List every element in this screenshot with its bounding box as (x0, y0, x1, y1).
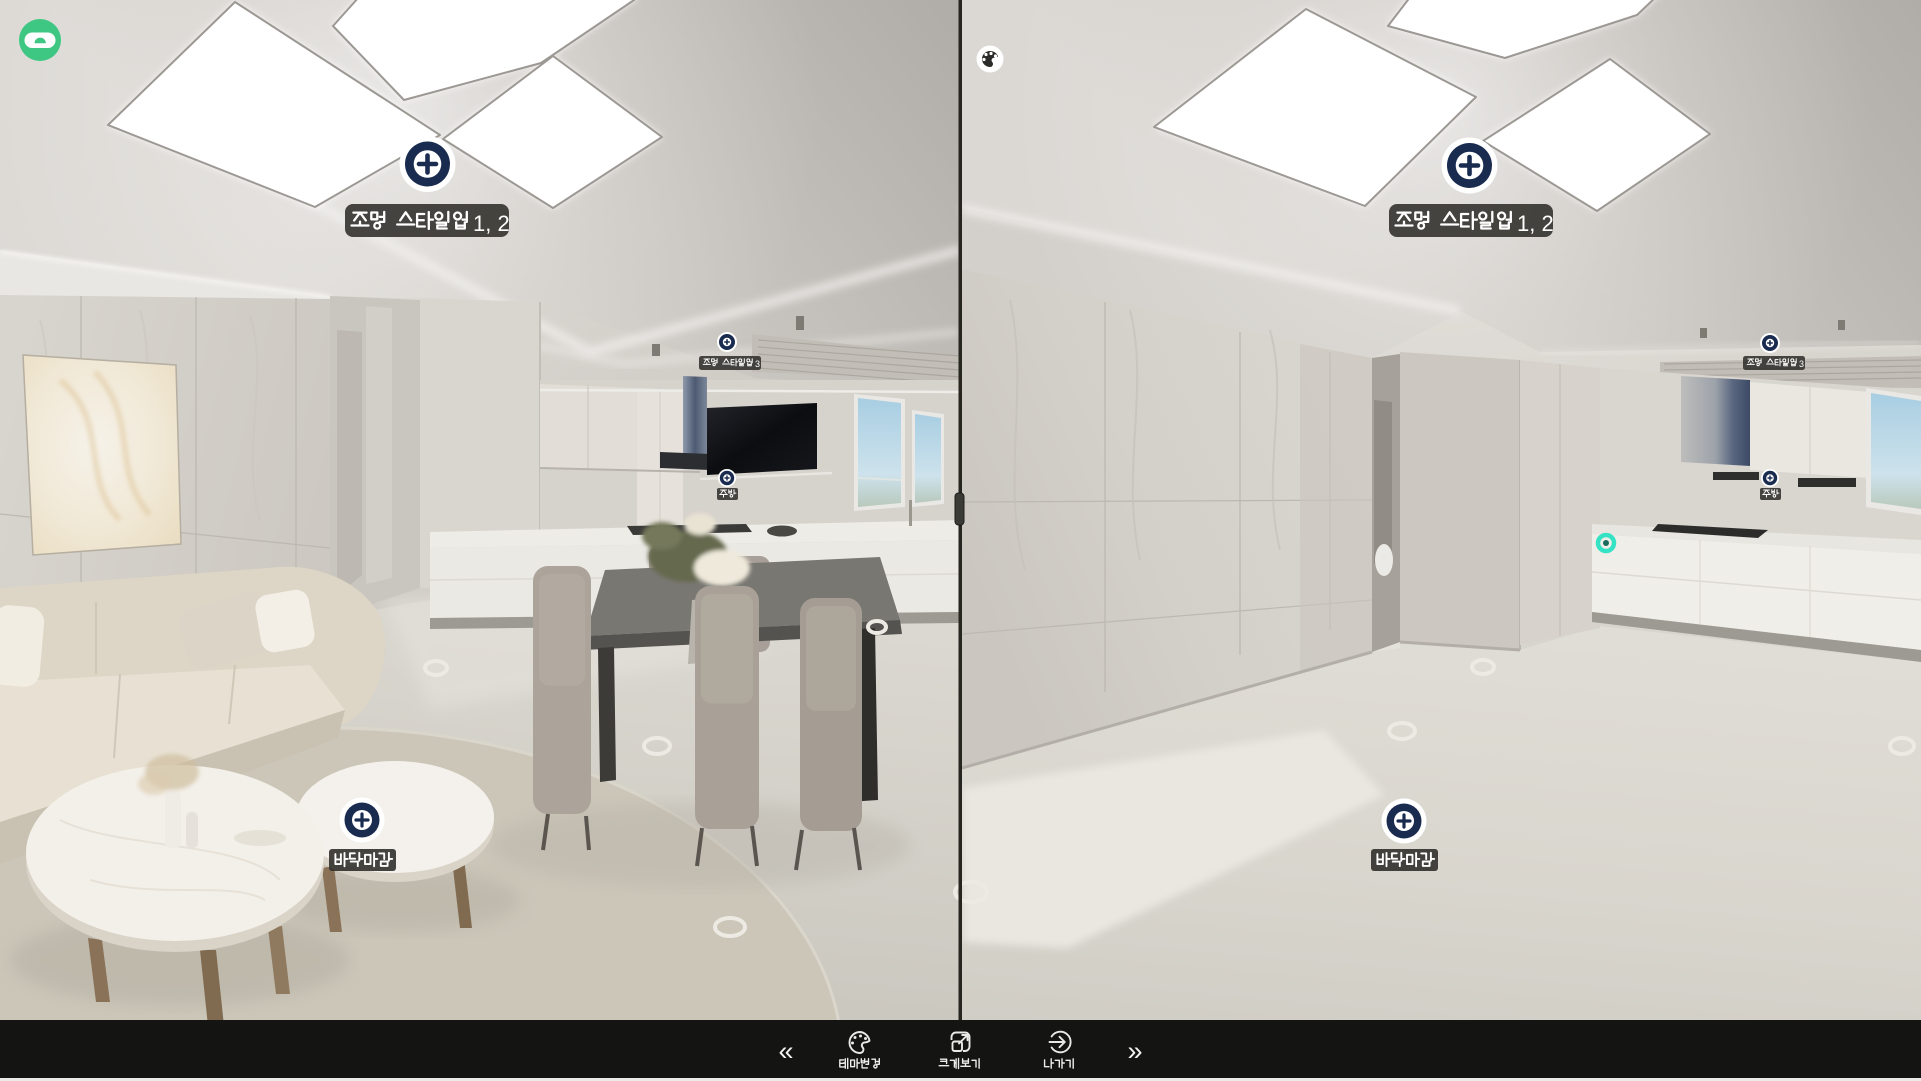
svg-text:1, 2: 1, 2 (473, 211, 510, 236)
svg-text:1, 2: 1, 2 (1517, 211, 1554, 236)
svg-text:3: 3 (1799, 359, 1804, 369)
svg-text:«: « (778, 1036, 793, 1066)
svg-text:»: » (1127, 1036, 1142, 1066)
svg-text:3: 3 (755, 359, 760, 369)
